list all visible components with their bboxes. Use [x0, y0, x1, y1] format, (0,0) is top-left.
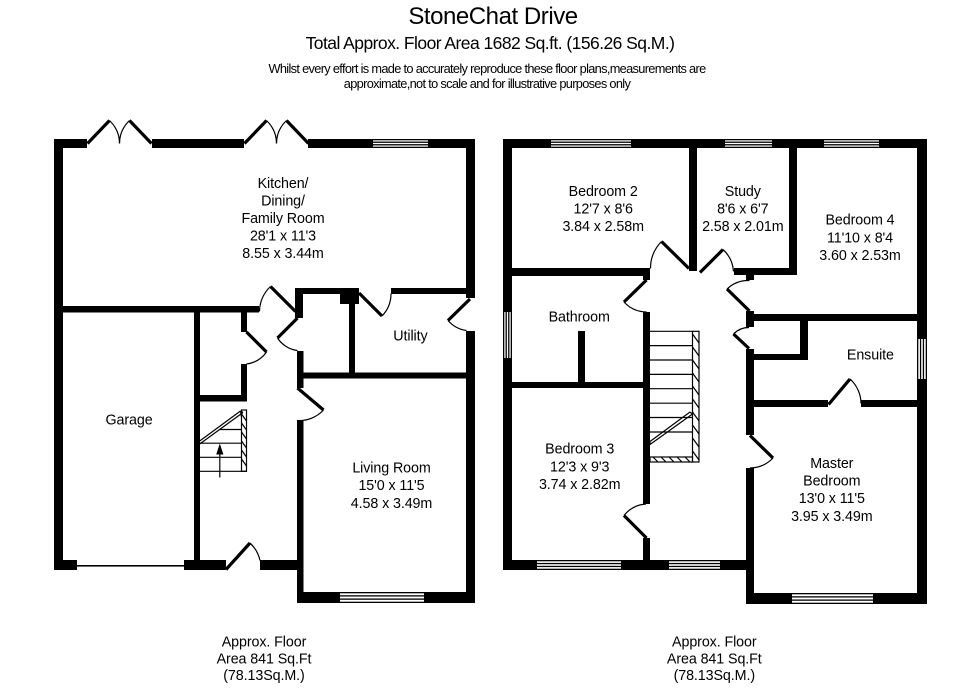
svg-text:3.60 x 2.53m: 3.60 x 2.53m	[819, 248, 900, 264]
svg-text:13'0 x 11'5: 13'0 x 11'5	[799, 491, 865, 507]
svg-text:Bathroom: Bathroom	[549, 309, 610, 325]
svg-text:Utility: Utility	[393, 329, 428, 345]
svg-text:Bedroom 2: Bedroom 2	[569, 184, 638, 200]
svg-text:15'0 x 11'5: 15'0 x 11'5	[358, 478, 424, 494]
svg-text:Ensuite: Ensuite	[847, 347, 894, 363]
svg-text:12'3 x 9'3: 12'3 x 9'3	[550, 459, 609, 475]
svg-text:Garage: Garage	[105, 413, 152, 429]
svg-text:Area 841 Sq.Ft: Area 841 Sq.Ft	[217, 651, 312, 667]
svg-text:Approx. Floor: Approx. Floor	[222, 635, 307, 651]
svg-text:3.95 x 3.49m: 3.95 x 3.49m	[791, 509, 872, 525]
svg-text:8'6 x 6'7: 8'6 x 6'7	[717, 202, 769, 218]
svg-text:2.58 x 2.01m: 2.58 x 2.01m	[702, 219, 783, 235]
svg-text:Family Room: Family Room	[241, 211, 324, 227]
svg-text:(78.13Sq.M.): (78.13Sq.M.)	[674, 668, 755, 684]
svg-text:Area 841 Sq.Ft: Area 841 Sq.Ft	[667, 651, 762, 667]
svg-text:Study: Study	[725, 184, 762, 200]
svg-text:Dining/: Dining/	[261, 193, 305, 209]
svg-text:Kitchen/: Kitchen/	[258, 176, 309, 192]
svg-text:Bedroom 4: Bedroom 4	[825, 213, 894, 229]
svg-text:Bedroom: Bedroom	[803, 474, 860, 490]
svg-text:(78.13Sq.M.): (78.13Sq.M.)	[223, 668, 304, 684]
svg-text:3.84 x 2.58m: 3.84 x 2.58m	[562, 219, 643, 235]
svg-text:Bedroom 3: Bedroom 3	[545, 442, 614, 458]
svg-text:Approx. Floor: Approx. Floor	[672, 635, 757, 651]
svg-text:Master: Master	[810, 456, 853, 472]
svg-text:28'1 x 11'3: 28'1 x 11'3	[250, 229, 316, 245]
svg-text:11'10 x 8'4: 11'10 x 8'4	[827, 230, 893, 246]
svg-text:8.55 x 3.44m: 8.55 x 3.44m	[242, 246, 323, 262]
svg-text:approximate,not to scale and f: approximate,not to scale and for illustr…	[344, 76, 632, 91]
svg-text:Total Approx. Floor Area 1682: Total Approx. Floor Area 1682 Sq.ft. (15…	[306, 33, 675, 53]
svg-text:3.74 x 2.82m: 3.74 x 2.82m	[539, 477, 620, 493]
svg-text:4.58 x 3.49m: 4.58 x 3.49m	[351, 496, 432, 512]
svg-text:12'7 x 8'6: 12'7 x 8'6	[574, 202, 633, 218]
svg-text:Living Room: Living Room	[352, 461, 430, 477]
svg-text:Whilst every effort is made to: Whilst every effort is made to accuratel…	[268, 61, 706, 76]
svg-text:StoneChat Drive: StoneChat Drive	[408, 3, 577, 30]
